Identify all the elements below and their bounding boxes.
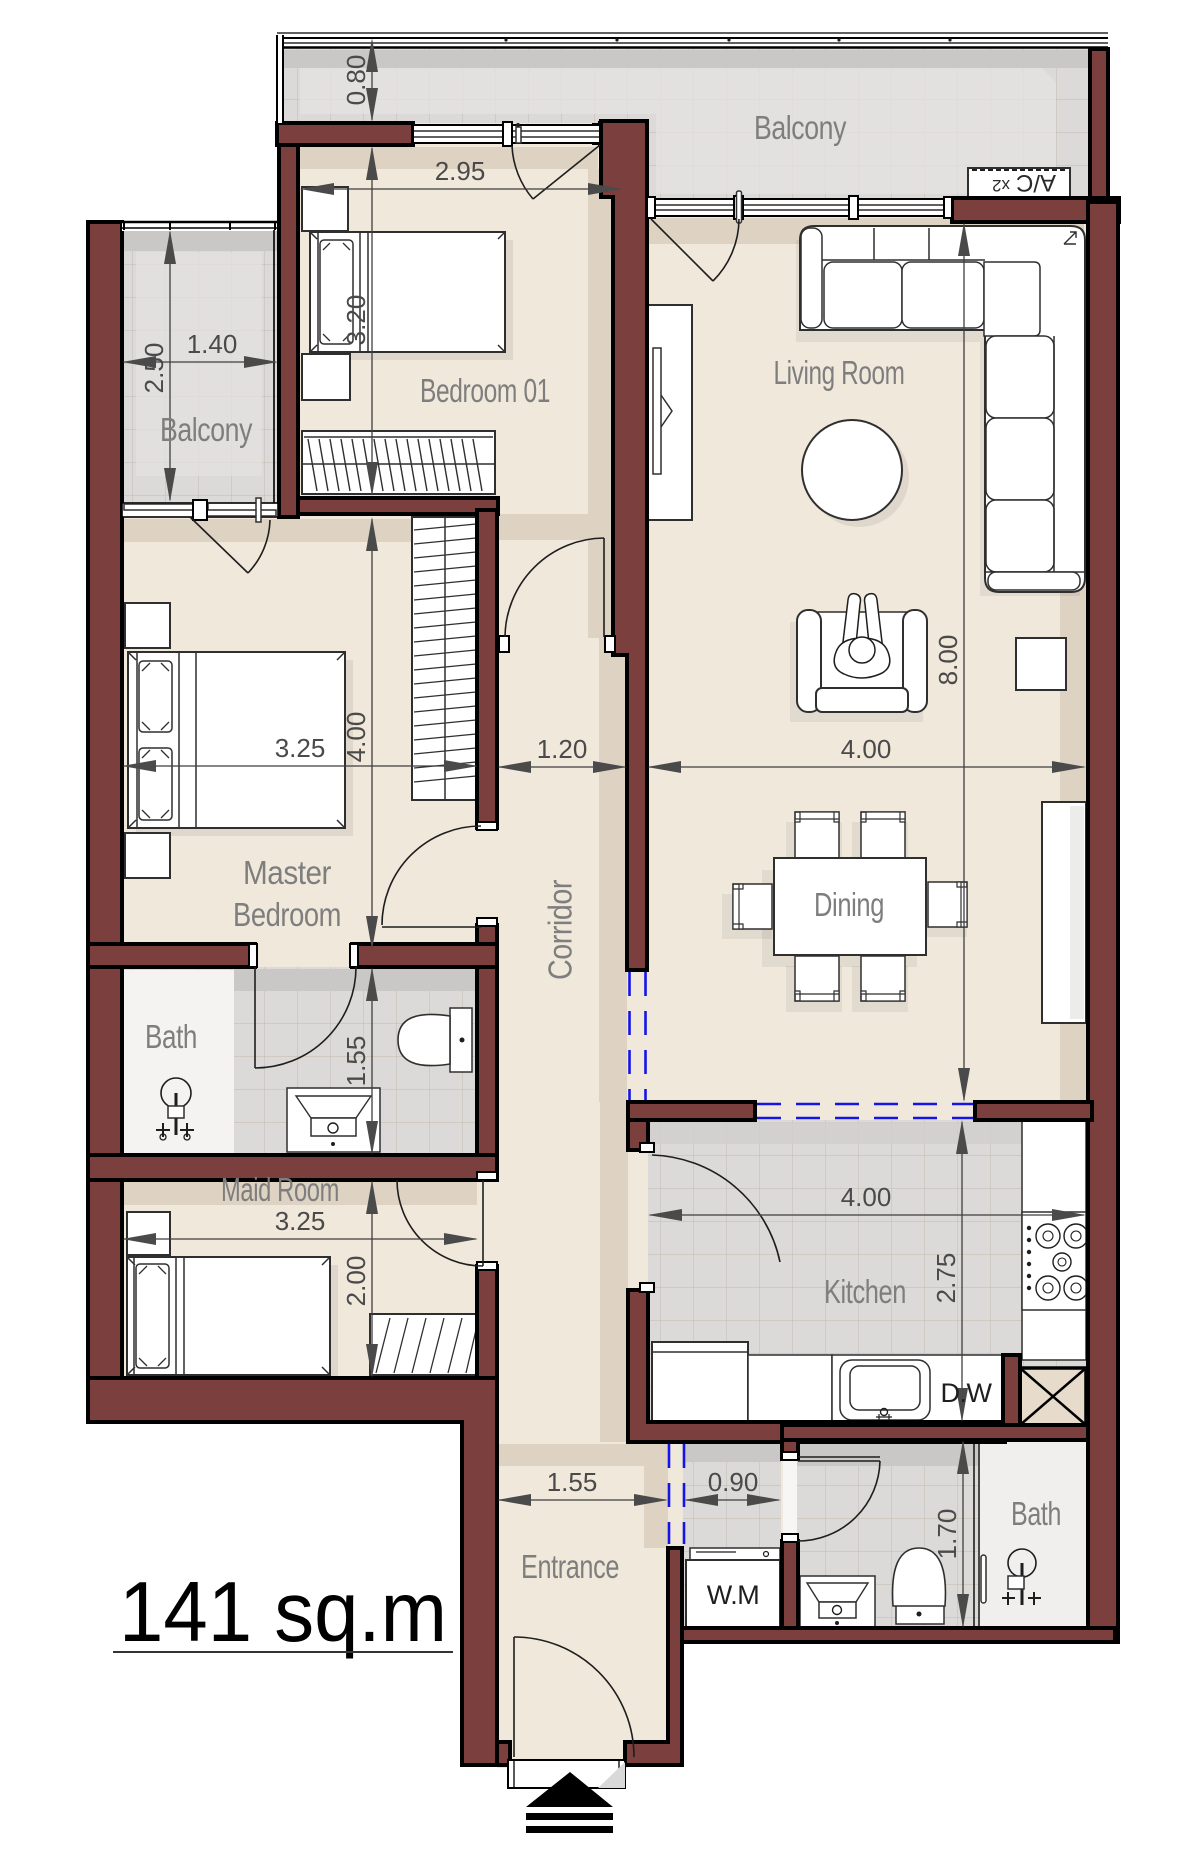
- svg-text:141 sq.m: 141 sq.m: [119, 1565, 447, 1660]
- svg-text:Bath: Bath: [145, 1018, 197, 1055]
- svg-text:Balcony: Balcony: [754, 109, 847, 146]
- svg-text:W.M: W.M: [707, 1580, 760, 1610]
- svg-text:0.90: 0.90: [708, 1467, 759, 1497]
- svg-text:1.40: 1.40: [187, 329, 238, 359]
- svg-text:2.50: 2.50: [139, 343, 169, 394]
- svg-text:Bath: Bath: [1011, 1495, 1061, 1532]
- svg-text:Master: Master: [243, 854, 331, 891]
- svg-text:3.25: 3.25: [275, 1206, 326, 1236]
- svg-text:1.70: 1.70: [932, 1509, 962, 1560]
- svg-text:4.00: 4.00: [341, 712, 371, 763]
- svg-text:3.20: 3.20: [341, 295, 371, 346]
- svg-text:x2: x2: [992, 176, 1010, 195]
- svg-text:Entrance: Entrance: [521, 1548, 619, 1585]
- svg-text:Kitchen: Kitchen: [824, 1273, 906, 1310]
- svg-text:8.00: 8.00: [933, 635, 963, 686]
- svg-text:4.00: 4.00: [841, 1182, 892, 1212]
- svg-text:Bedroom: Bedroom: [233, 896, 341, 933]
- svg-text:3.25: 3.25: [275, 733, 326, 763]
- svg-text:Living Room: Living Room: [774, 354, 905, 391]
- svg-text:1.55: 1.55: [341, 1036, 371, 1087]
- svg-text:2.75: 2.75: [931, 1253, 961, 1304]
- svg-text:D.W: D.W: [941, 1378, 993, 1408]
- svg-text:A/C: A/C: [1016, 169, 1056, 196]
- svg-text:0.80: 0.80: [341, 55, 371, 106]
- svg-text:Bedroom 01: Bedroom 01: [420, 372, 550, 409]
- svg-text:1.55: 1.55: [547, 1467, 598, 1497]
- svg-text:2.00: 2.00: [341, 1256, 371, 1307]
- svg-text:Balcony: Balcony: [160, 411, 253, 448]
- svg-text:Corridor: Corridor: [542, 880, 579, 980]
- svg-text:Maid Room: Maid Room: [221, 1171, 339, 1208]
- svg-text:1.20: 1.20: [537, 734, 588, 764]
- svg-text:4.00: 4.00: [841, 734, 892, 764]
- svg-text:2.95: 2.95: [435, 156, 486, 186]
- svg-text:Dining: Dining: [814, 886, 884, 923]
